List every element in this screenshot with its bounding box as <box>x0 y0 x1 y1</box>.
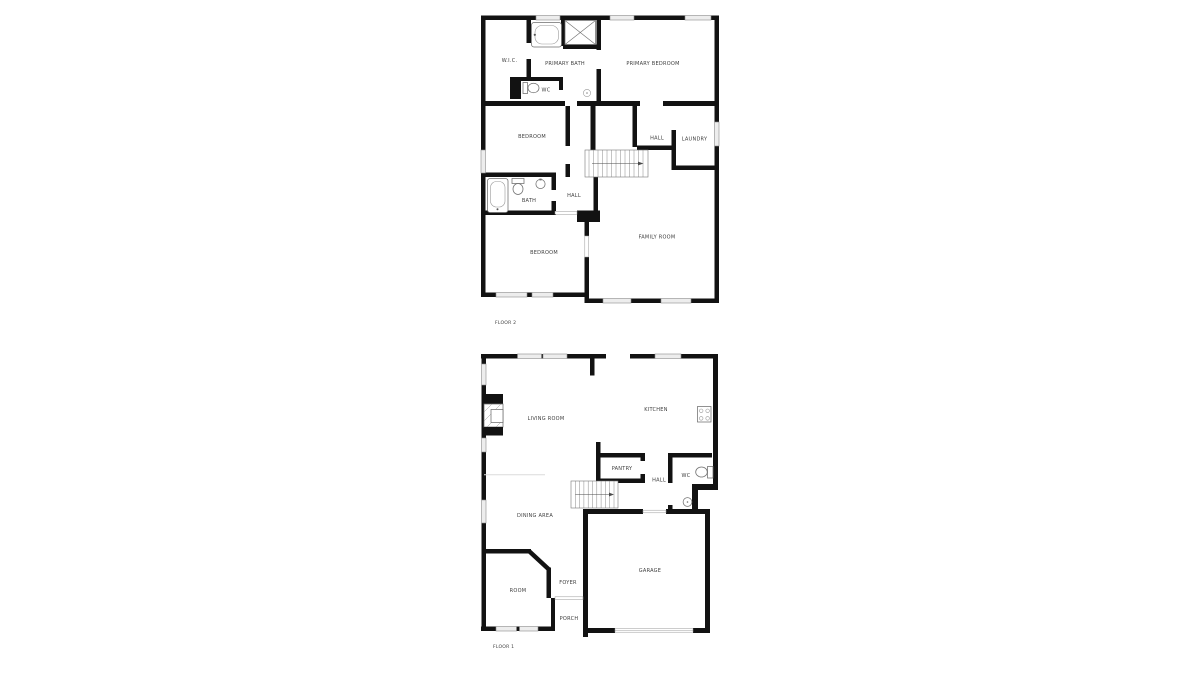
room-label-laundry: LAUNDRY <box>682 137 708 143</box>
room-label-pantry: PANTRY <box>612 466 633 472</box>
room-label-porch: PORCH <box>560 616 579 622</box>
toilet-icon-2 <box>512 179 524 195</box>
floor2-room-labels: W.I.C. PRIMARY BATH PRIMARY BEDROOM WC B… <box>495 58 708 326</box>
floor2-title: FLOOR 2 <box>495 320 516 326</box>
room-label-garage: GARAGE <box>639 568 661 574</box>
room-label-living-room: LIVING ROOM <box>528 416 565 422</box>
room-label-primary-bedroom: PRIMARY BEDROOM <box>626 61 679 67</box>
staircase-floor1 <box>571 481 618 508</box>
floor1-room-labels: LIVING ROOM KITCHEN PANTRY HALL WC DININ… <box>493 407 691 650</box>
sink-icon <box>536 179 545 189</box>
toilet-icon-floor1 <box>696 467 713 479</box>
room-label-bath: BATH <box>522 198 536 204</box>
bathtub-icon-2 <box>488 179 509 213</box>
room-label-bedroom-upper: BEDROOM <box>518 134 546 140</box>
room-label-wc: WC <box>682 473 691 479</box>
shower-icon <box>565 21 596 45</box>
toilet-icon <box>523 83 539 94</box>
floorplan-floor-2: W.I.C. PRIMARY BATH PRIMARY BEDROOM WC B… <box>478 12 724 330</box>
room-label-primary-bath: PRIMARY BATH <box>545 61 585 67</box>
bathtub-icon <box>532 23 562 48</box>
room-label-bedroom-lower: BEDROOM <box>530 250 558 256</box>
room-label-hall: HALL <box>652 478 666 484</box>
room-label-wic: W.I.C. <box>502 58 518 64</box>
staircase-floor2 <box>585 150 648 177</box>
room-label-room: ROOM <box>510 588 527 594</box>
floor1-title: FLOOR 1 <box>493 644 514 650</box>
floorplan-floor-1: LIVING ROOM KITCHEN PANTRY HALL WC DININ… <box>478 348 724 654</box>
sink-icon-floor1 <box>683 498 692 507</box>
stove-icon <box>698 407 712 423</box>
fireplace-icon <box>484 394 503 436</box>
room-label-kitchen: KITCHEN <box>644 407 667 413</box>
room-label-foyer: FOYER <box>559 580 577 586</box>
room-label-family-room: FAMILY ROOM <box>639 235 676 241</box>
room-label-hall-lower: HALL <box>567 193 581 199</box>
floorplan-canvas: W.I.C. PRIMARY BATH PRIMARY BEDROOM WC B… <box>0 0 1200 674</box>
room-label-dining-area: DINING AREA <box>517 513 553 519</box>
ceiling-light-icon <box>583 89 590 96</box>
room-label-wc-upper: WC <box>542 88 551 94</box>
room-label-hall-upper: HALL <box>650 136 664 142</box>
front-door <box>555 597 583 600</box>
